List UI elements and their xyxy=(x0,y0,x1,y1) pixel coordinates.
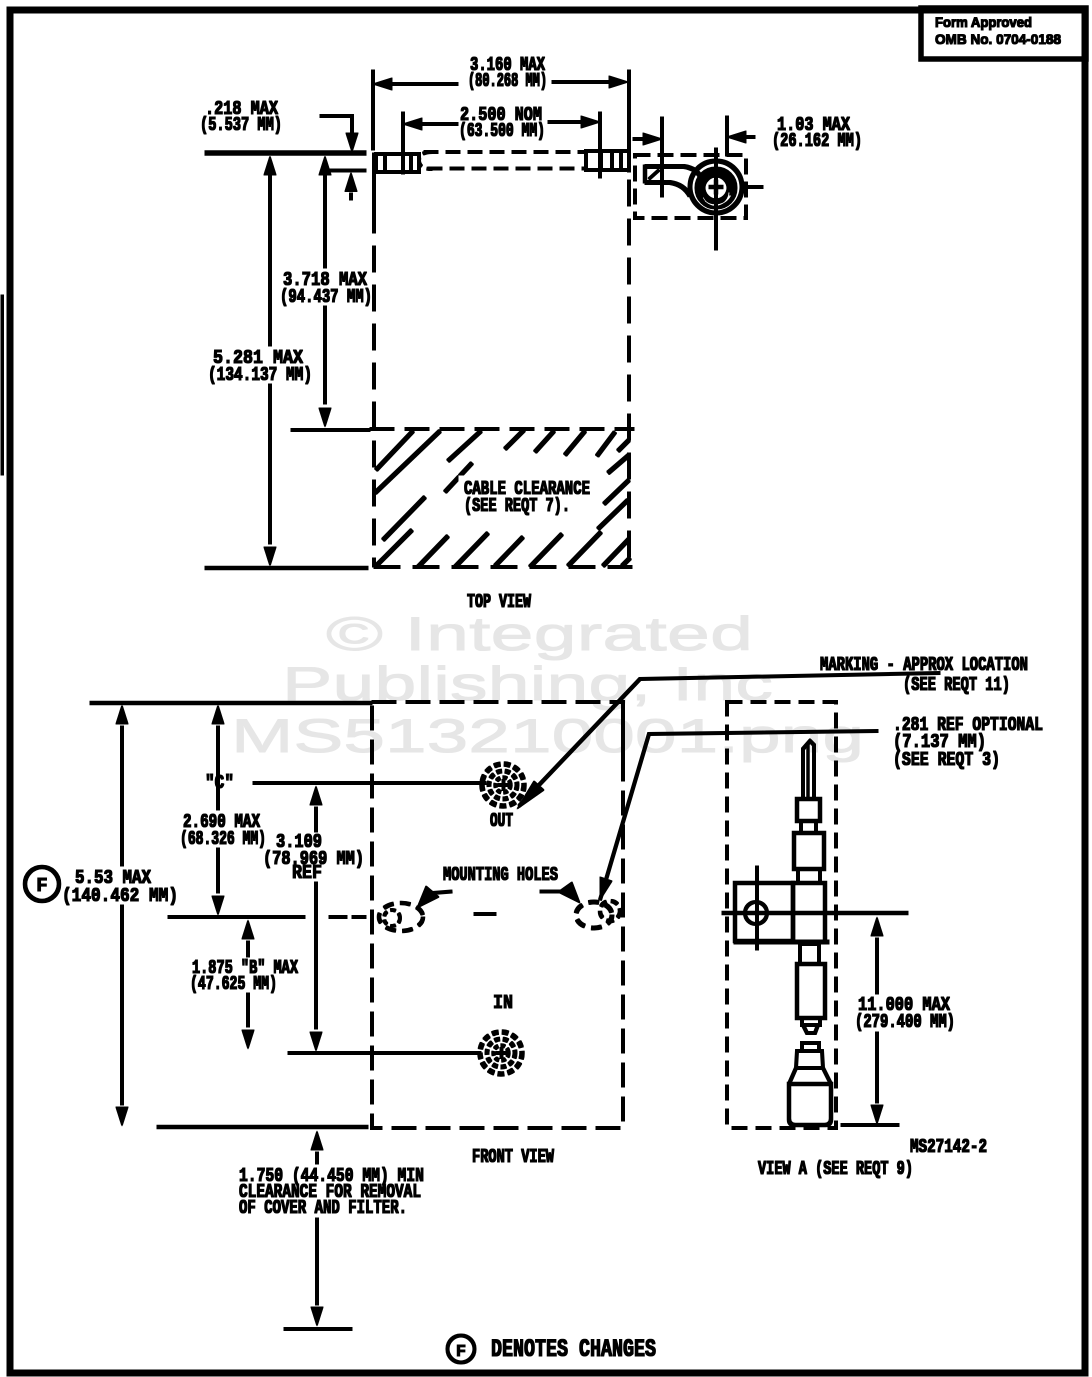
svg-text:TOP VIEW: TOP VIEW xyxy=(467,591,531,613)
svg-text:(80.268 MM): (80.268 MM) xyxy=(468,70,547,92)
svg-text:DENOTES CHANGES: DENOTES CHANGES xyxy=(491,1335,656,1364)
svg-text:MOUNTING HOLES: MOUNTING HOLES xyxy=(443,864,558,886)
svg-text:(94.437 MM): (94.437 MM) xyxy=(280,286,372,308)
svg-text:REF: REF xyxy=(292,862,322,884)
svg-text:OUT: OUT xyxy=(490,810,513,832)
svg-text:(SEE REQT 3): (SEE REQT 3) xyxy=(893,749,1000,771)
svg-text:(26.162 MM): (26.162 MM) xyxy=(772,130,862,152)
svg-text:(SEE REQT 11): (SEE REQT 11) xyxy=(903,674,1010,696)
svg-text:IN: IN xyxy=(493,992,513,1014)
svg-text:F: F xyxy=(36,875,47,897)
svg-text:FRONT VIEW: FRONT VIEW xyxy=(472,1146,554,1168)
svg-text:(SEE REQT 7).: (SEE REQT 7). xyxy=(464,495,570,517)
svg-text:OMB No. 0704-0188: OMB No. 0704-0188 xyxy=(935,31,1061,47)
svg-text:(47.625 MM): (47.625 MM) xyxy=(190,973,277,995)
svg-text:F: F xyxy=(456,1343,466,1362)
svg-text:MS27142-2: MS27142-2 xyxy=(910,1136,987,1158)
svg-text:MARKING - APPROX LOCATION: MARKING - APPROX LOCATION xyxy=(820,654,1028,676)
svg-text:(134.137 MM): (134.137 MM) xyxy=(208,364,312,386)
svg-text:(279.400 MM): (279.400 MM) xyxy=(855,1011,955,1033)
svg-text:© Integrated: © Integrated xyxy=(326,607,753,660)
svg-text:(140.462 MM): (140.462 MM) xyxy=(62,885,178,907)
svg-text:(5.537 MM): (5.537 MM) xyxy=(200,114,282,136)
svg-text:VIEW A (SEE REQT 9): VIEW A (SEE REQT 9) xyxy=(758,1158,913,1180)
svg-text:(68.326 MM): (68.326 MM) xyxy=(180,828,266,850)
svg-text:(63.500 MM): (63.500 MM) xyxy=(459,120,545,142)
svg-text:Form Approved: Form Approved xyxy=(935,14,1032,30)
svg-text:MS513210001.png: MS513210001.png xyxy=(231,709,864,762)
svg-text:OF COVER AND FILTER.: OF COVER AND FILTER. xyxy=(239,1197,407,1219)
